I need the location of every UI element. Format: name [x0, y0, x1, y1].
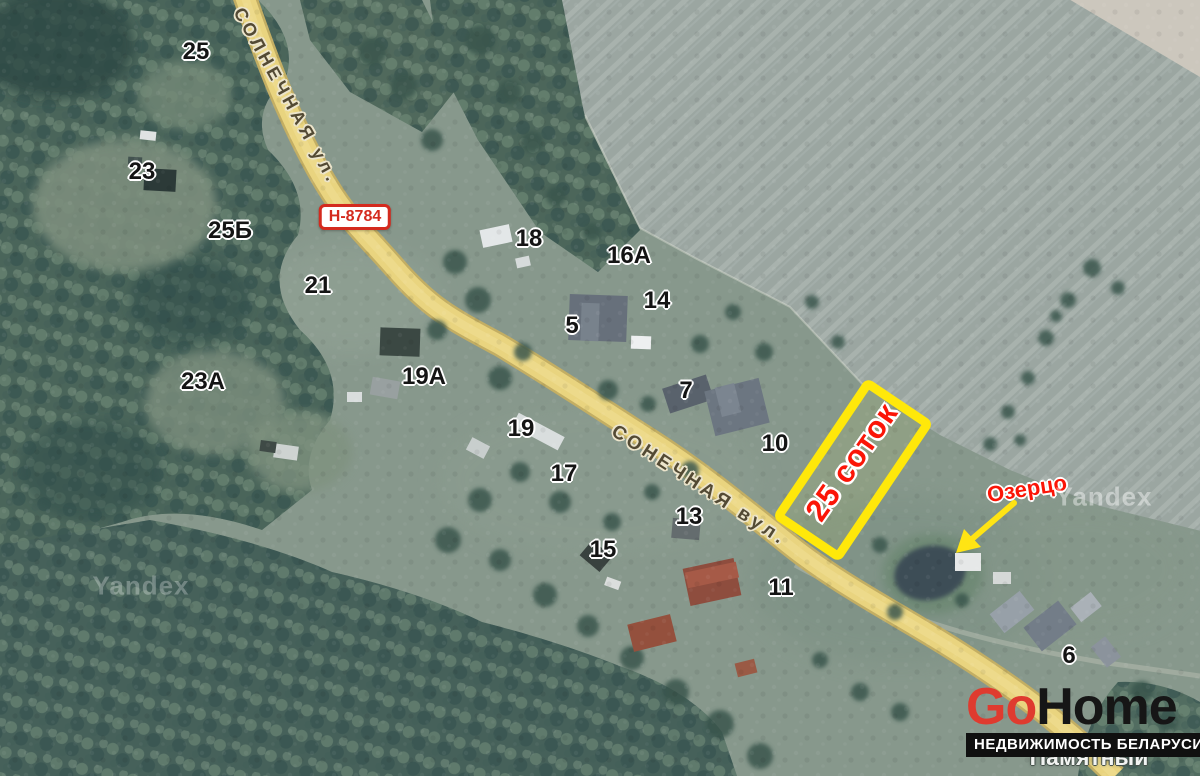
house-number-label: 5 [565, 312, 578, 340]
plot-area-label: 25 соток [798, 396, 905, 528]
brand-tagline: НЕДВИЖИМОСТЬ БЕЛАРУСИ [966, 733, 1200, 757]
house-number-label: 18 [516, 225, 543, 253]
house-number-label: 19А [402, 363, 446, 391]
house-number-label: 19 [508, 415, 535, 443]
house-number-label: 25Б [208, 217, 252, 245]
house-number-label: 15 [590, 536, 617, 564]
label-overlay: 252325Б2123А19А19171513111816А1457106 СО… [0, 0, 1200, 776]
logo-home-text: Home [1036, 678, 1176, 736]
house-number-label: 23А [181, 368, 225, 396]
poi-label-line2: камень в честь [1002, 770, 1175, 776]
gohome-logo: GoHome [966, 684, 1200, 730]
logo-go-text: Go [966, 678, 1036, 736]
house-number-label: 11 [768, 574, 793, 602]
house-number-label: 17 [551, 460, 578, 488]
house-number-label: 25 [183, 38, 210, 66]
house-number-label: 13 [676, 503, 703, 531]
house-number-label: 21 [305, 272, 332, 300]
street-label-solnechnaya: СОЛНЕЧНАЯ ул. [229, 4, 344, 188]
house-number-label: 6 [1062, 642, 1075, 670]
road-number-badge: Н-8784 [319, 204, 391, 230]
yandex-watermark: Yandex [1055, 482, 1152, 513]
satellite-map-screenshot: 252325Б2123А19А19171513111816А1457106 СО… [0, 0, 1200, 776]
gohome-logo-block: GoHome НЕДВИЖИМОСТЬ БЕЛАРУСИ [966, 684, 1200, 757]
house-number-label: 23 [129, 158, 156, 186]
yandex-watermark: Yandex [92, 571, 189, 602]
house-number-label: 16А [607, 242, 651, 270]
house-number-label: 7 [679, 377, 692, 405]
house-number-label: 10 [762, 430, 789, 458]
house-number-label: 14 [644, 287, 671, 315]
